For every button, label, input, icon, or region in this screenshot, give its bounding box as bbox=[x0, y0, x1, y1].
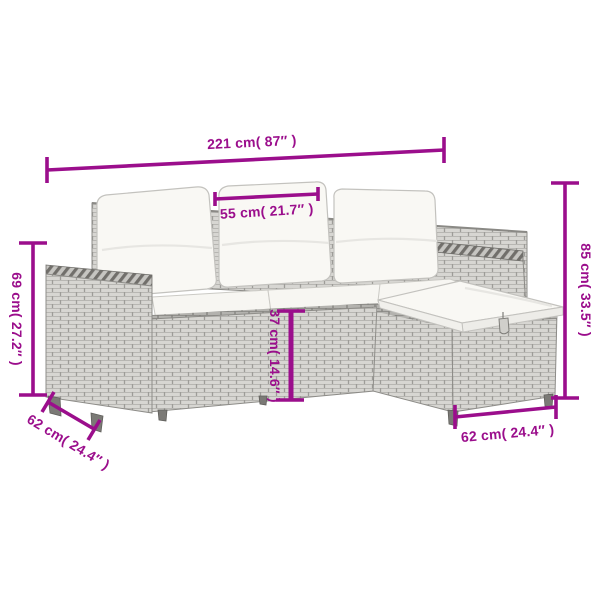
left-armrest-front bbox=[46, 274, 152, 413]
sofa-leg bbox=[259, 396, 267, 405]
dim-total-width: 221 cm( 87″ ) bbox=[47, 132, 444, 183]
dim-total-width-label: 221 cm( 87″ ) bbox=[207, 132, 297, 152]
product-dimension-image: 221 cm( 87″ ) 55 cm( 21.7″ ) 69 cm( 27.2… bbox=[0, 0, 600, 600]
dim-backrest-height: 69 cm( 27.2″ ) bbox=[9, 243, 47, 395]
left-armrest bbox=[46, 265, 152, 413]
footstool-leg bbox=[544, 394, 553, 407]
sofa-illustration bbox=[46, 182, 563, 432]
dim-seat-height-label: 37 cm( 14.6″ ) bbox=[267, 309, 283, 403]
sofa-dimension-illustration: 221 cm( 87″ ) 55 cm( 21.7″ ) 69 cm( 27.2… bbox=[0, 0, 600, 600]
dim-total-height-label: 85 cm( 33.5″ ) bbox=[578, 243, 594, 337]
dim-total-height: 85 cm( 33.5″ ) bbox=[551, 183, 594, 398]
sofa-leg bbox=[158, 410, 167, 421]
dim-footstool-depth-label: 62 cm( 24.4″ ) bbox=[460, 421, 555, 445]
back-cushion-right bbox=[334, 189, 438, 283]
dim-backrest-height-label: 69 cm( 27.2″ ) bbox=[9, 272, 25, 366]
